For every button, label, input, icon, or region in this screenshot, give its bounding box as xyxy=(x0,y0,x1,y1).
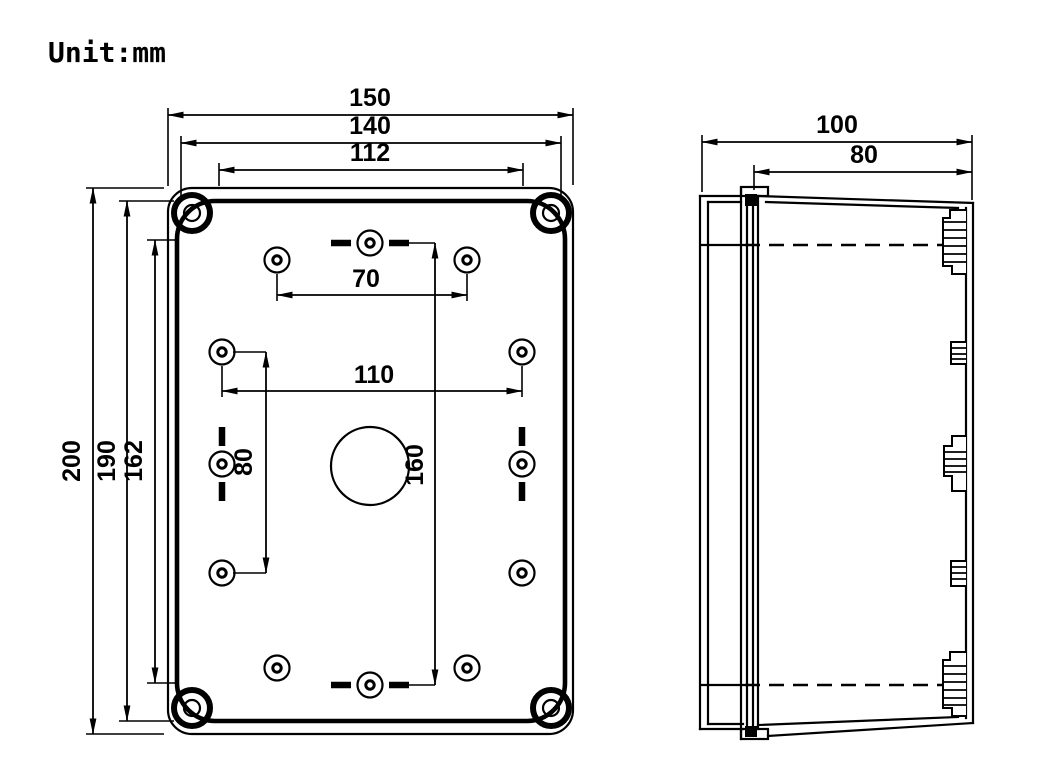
mounting-hole xyxy=(265,656,290,681)
clamp-block-top xyxy=(745,194,757,206)
drawing-page: Unit:mm xyxy=(0,0,1060,782)
unit-label: Unit:mm xyxy=(48,36,166,69)
dim-left-hole-pitch-vertical: 80 xyxy=(230,352,266,573)
mounting-hole xyxy=(510,561,535,586)
dim-body-depth: 80 xyxy=(754,141,972,190)
dim-lid-height-label: 190 xyxy=(93,440,121,482)
dim-top-hole-span: 112 xyxy=(219,139,523,186)
mounting-hole xyxy=(455,248,480,273)
slot-hole-bottom-center xyxy=(331,673,409,698)
dim-mid-hole-pitch-label: 110 xyxy=(354,361,394,389)
dim-overall-height-label: 200 xyxy=(58,440,86,482)
dim-mid-hole-pitch: 110 xyxy=(222,361,522,397)
side-lid-outline xyxy=(700,196,745,729)
mounting-hole xyxy=(210,561,235,586)
dim-inner-height-label: 162 xyxy=(120,440,148,482)
dim-center-hole-pitch-label: 160 xyxy=(401,444,429,486)
side-body-outline xyxy=(758,196,973,736)
mount-tab-lower xyxy=(951,561,966,586)
technical-drawing-canvas: Unit:mm xyxy=(0,0,1060,782)
slot-hole-top-center xyxy=(331,231,409,256)
side-view: 100 80 xyxy=(700,111,973,739)
mounting-holes xyxy=(210,248,535,681)
dim-left-hole-pitch-label: 80 xyxy=(230,448,258,476)
mounting-hole xyxy=(210,340,235,365)
mounting-hole xyxy=(455,656,480,681)
dim-center-hole-pitch-vertical: 160 xyxy=(401,243,435,685)
cable-entry-hole xyxy=(331,427,409,505)
mounting-hole xyxy=(510,340,535,365)
front-view: 150 140 112 200 190 xyxy=(58,84,573,734)
dim-overall-width-label: 150 xyxy=(349,84,391,112)
mounting-hole xyxy=(265,248,290,273)
clamp-block-bottom xyxy=(745,726,757,737)
slot-hole-mid-right xyxy=(510,427,535,501)
side-clamp-strip xyxy=(741,187,768,739)
dim-top-hole-pitch-label: 70 xyxy=(352,265,380,293)
mount-tab-upper xyxy=(951,342,966,364)
screw-boss-top xyxy=(943,210,966,274)
dim-top-hole-span-label: 112 xyxy=(350,139,390,167)
screw-boss-middle xyxy=(944,436,966,491)
dim-overall-depth-label: 100 xyxy=(816,111,858,139)
screw-boss-bottom xyxy=(943,652,966,716)
dim-top-hole-pitch: 70 xyxy=(277,265,467,301)
dim-body-depth-label: 80 xyxy=(850,141,878,169)
dim-lid-width-label: 140 xyxy=(349,112,391,140)
